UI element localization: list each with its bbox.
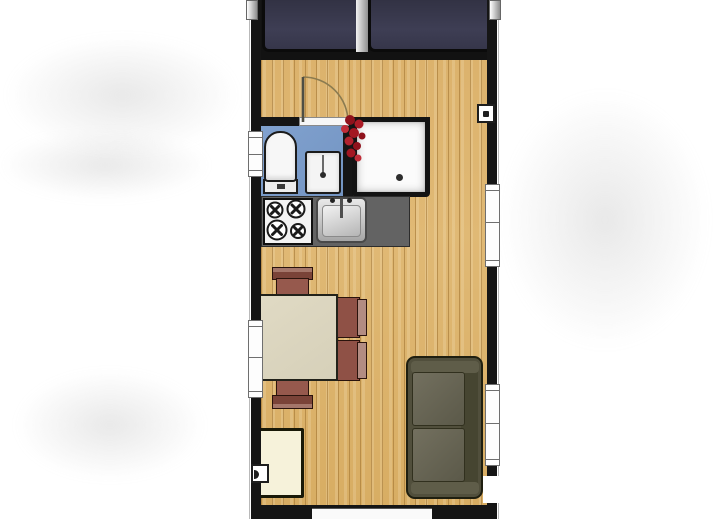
shower-drain-icon	[396, 174, 403, 181]
sofa-cushion	[412, 428, 465, 482]
washbasin-faucet-pipe	[322, 155, 324, 173]
wall-fixture-left-icon	[251, 464, 269, 483]
kitchen-faucet-handle-icon	[330, 198, 335, 203]
kitchen-faucet-handle-icon	[347, 198, 352, 203]
right-window-upper	[485, 184, 500, 267]
outlet-dot	[483, 111, 489, 117]
scan-smudge	[0, 130, 210, 200]
window-frame-line	[249, 154, 262, 155]
wall-pipe-right	[489, 0, 501, 20]
stove	[263, 198, 313, 245]
towel-hooks-icon	[336, 112, 370, 164]
sofa-cushion	[412, 372, 465, 426]
toilet-flush-button-icon	[277, 184, 285, 189]
window-frame-line	[486, 190, 499, 191]
wall-left-outline	[249, 0, 250, 519]
window-frame-line	[249, 326, 262, 327]
window-frame-line	[249, 170, 262, 171]
right-wall-lower-opening	[483, 476, 500, 503]
kitchen-sink	[316, 197, 367, 243]
scan-smudge	[15, 370, 205, 480]
chair-right-upper-backrest	[357, 299, 367, 336]
chair-bottom-backrest	[272, 395, 313, 409]
left-window-lower	[248, 320, 263, 398]
sofa	[406, 356, 483, 499]
left-window-upper	[248, 131, 263, 177]
window-frame-line	[486, 260, 499, 261]
wall-outlet-right-icon	[477, 104, 495, 123]
window-frame-line	[249, 137, 262, 138]
fixture-dot	[254, 470, 259, 479]
kitchen-faucet-spout	[340, 199, 343, 218]
bed-right	[368, 0, 493, 52]
toilet	[264, 131, 297, 182]
window-frame-line	[249, 357, 262, 358]
window-frame-line	[486, 390, 499, 391]
cabinet	[258, 428, 304, 498]
wall-pipe-left	[246, 0, 258, 20]
bottom-wall-opening	[312, 508, 432, 519]
washbasin-faucet-icon	[320, 172, 326, 178]
window-frame-line	[486, 459, 499, 460]
right-window-lower	[485, 384, 500, 466]
wall-left	[251, 0, 261, 519]
sofa-armrest-bottom	[411, 482, 479, 494]
window-frame-line	[486, 222, 499, 223]
scan-smudge	[500, 90, 710, 350]
stove-burners-icon	[265, 200, 311, 243]
bed-left	[262, 0, 362, 52]
bed-gap-divider	[356, 0, 368, 52]
window-frame-line	[486, 423, 499, 424]
window-frame-line	[249, 391, 262, 392]
chair-right-lower-backrest	[357, 342, 367, 379]
floor-plan-canvas	[0, 0, 713, 519]
dining-table	[259, 294, 338, 381]
